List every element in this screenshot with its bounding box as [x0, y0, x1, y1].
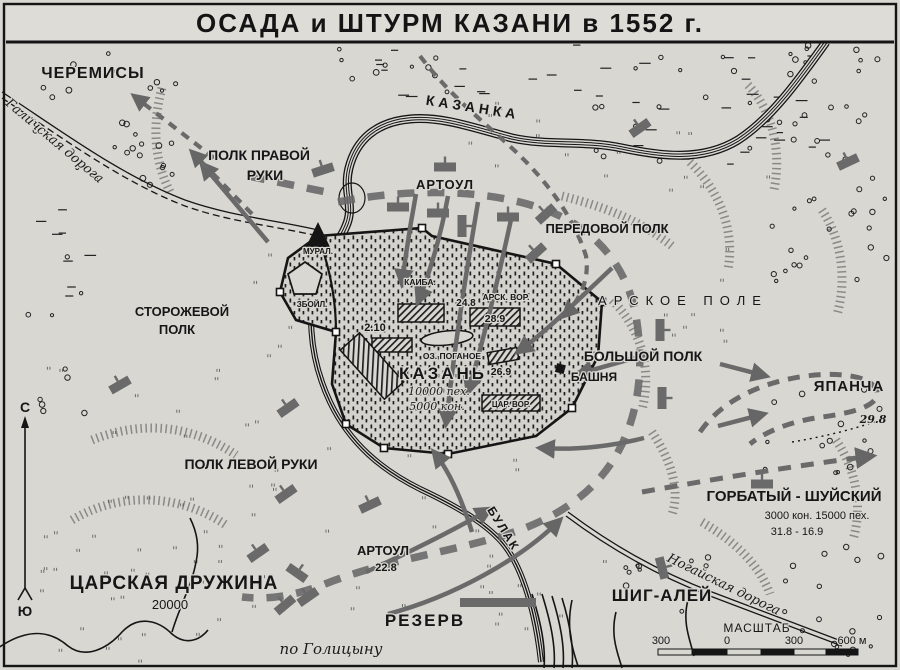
- label-date-west: 2.10: [364, 322, 385, 334]
- label-yapancha-date: 29.8: [859, 413, 887, 426]
- kazan-siege-map: С Ю МАСШТАБ 300 0 300 600 м ЧЕРЕМИСЫ КАЗ…: [0, 0, 900, 670]
- scale-tick-1: 0: [724, 635, 730, 647]
- label-date-arsk: 28.9: [485, 313, 506, 325]
- label-garrison-cavalry: 5000 кон.: [409, 400, 464, 413]
- label-gate-mural: МУРАЛ.: [303, 247, 333, 256]
- label-artoul-south: АРТОУЛ: [357, 543, 409, 558]
- label-gorbaty-dates: 31.8 - 16.9: [771, 526, 824, 538]
- label-arskoe-pole: АРСКОЕ ПОЛЕ: [598, 293, 768, 308]
- label-gorbaty-forces: 3000 кон. 15000 пех.: [765, 510, 870, 522]
- scale-tick-2: 300: [785, 635, 803, 647]
- compass-south-label: Ю: [18, 603, 32, 619]
- label-date-north: 24.8: [456, 298, 476, 309]
- label-credit: по Голицыну: [280, 640, 383, 658]
- label-peredovoy-polk: ПЕРЕДОВОЙ ПОЛК: [545, 221, 668, 236]
- label-garrison-infantry: 10000 пех.: [408, 385, 470, 398]
- label-storozhevoy-1: СТОРОЖЕВОЙ: [135, 304, 229, 319]
- map-canvas: С Ю МАСШТАБ 300 0 300 600 м ЧЕРЕМИСЫ КАЗ…: [0, 0, 900, 670]
- label-shig-aley: ШИГ-АЛЕЙ: [612, 586, 713, 605]
- label-polk-pravoy-2: РУКИ: [247, 167, 283, 183]
- label-bashnya: БАШНЯ: [571, 370, 617, 384]
- compass-north-label: С: [20, 399, 30, 415]
- label-storozhevoy-2: ПОЛК: [159, 322, 195, 337]
- label-tsarskaya-forces: 20000: [152, 597, 188, 612]
- label-gate-tsar: ЦАР. ВОР.: [492, 400, 530, 409]
- label-cheremisy: ЧЕРЕМИСЫ: [41, 65, 144, 82]
- scale-title: МАСШТАБ: [723, 621, 790, 635]
- label-tsarskaya-druzhina: ЦАРСКАЯ ДРУЖИНА: [70, 573, 279, 594]
- label-bolshoy-polk: БОЛЬШОЙ ПОЛК: [584, 347, 703, 364]
- scale-bar-segments: [658, 649, 858, 655]
- label-artoul-south-date: 22.8: [375, 562, 396, 574]
- label-lake-poganoe: ОЗ. ПОГАНОЕ: [423, 351, 482, 361]
- label-gate-kaiba: КАИБА.: [404, 277, 436, 287]
- label-polk-pravoy-1: ПОЛК ПРАВОЙ: [208, 146, 310, 163]
- label-polk-levoy-ruki: ПОЛК ЛЕВОЙ РУКИ: [184, 455, 317, 472]
- label-gate-zboyl: ЗБОЙЛ.: [297, 300, 328, 309]
- label-gate-arsk: АРСК. ВОР.: [483, 292, 530, 302]
- label-artoul-north: АРТОУЛ: [416, 177, 474, 192]
- label-rezerv: РЕЗЕРВ: [385, 611, 465, 630]
- label-yapancha: ЯПАНЧА: [814, 378, 885, 395]
- label-gorbaty: ГОРБАТЫЙ - ШУЙСКИЙ: [707, 487, 882, 505]
- scale-tick-3: 600 м: [838, 635, 867, 647]
- scale-tick-0: 300: [652, 635, 670, 647]
- map-title: ОСАДА и ШТУРМ КАЗАНИ в 1552 г.: [196, 8, 704, 38]
- label-date-east: 26.9: [491, 366, 512, 378]
- label-kazan-city: КАЗАНЬ: [399, 364, 487, 383]
